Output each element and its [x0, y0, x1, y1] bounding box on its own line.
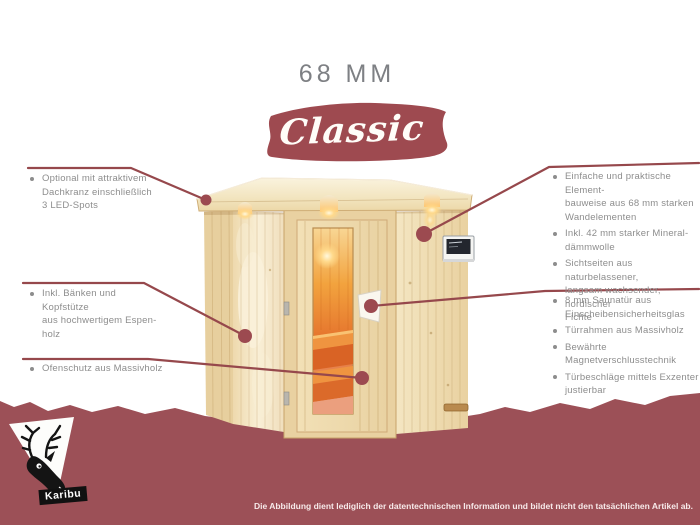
leader-dot-icon	[201, 195, 212, 206]
annotation-baenke: Inkl. Bänken und Kopfstütze aus hochwert…	[30, 287, 165, 341]
bullet-dot-icon	[553, 329, 557, 333]
annotation-group-door: 8 mm Saunatür aus Einscheibensicherheits…	[553, 294, 700, 398]
control-panel	[443, 236, 474, 262]
bullet-dot-icon	[553, 345, 557, 349]
annotation-magnetverschluss: Bewährte Magnetverschlusstechnik	[553, 341, 700, 368]
door-hinge-top	[284, 302, 289, 315]
annotation-saunatuer: 8 mm Saunatür aus Einscheibensicherheits…	[553, 294, 700, 321]
sauna-illustration	[197, 178, 474, 438]
vent-slot	[444, 404, 468, 411]
disclaimer-text: Die Abbildung dient lediglich der datent…	[243, 500, 693, 512]
annotation-elementbauweise: Einfache und praktische Element- bauweis…	[553, 170, 700, 224]
bullet-dot-icon	[553, 175, 557, 179]
led-spot-icon	[318, 195, 340, 220]
bullet-dot-icon	[553, 375, 557, 379]
page-title: 68 MM	[237, 60, 457, 89]
leader-dot-icon	[416, 226, 432, 242]
annotation-tuerrahmen: Türrahmen aus Massivholz	[553, 324, 700, 338]
bullet-dot-icon	[553, 232, 557, 236]
bullet-dot-icon	[30, 177, 34, 181]
annotation-led-spots: Optional mit attraktivem Dachkranz einsc…	[30, 172, 160, 213]
leader-dot-icon	[364, 299, 378, 313]
sauna-corner-wall	[233, 210, 284, 432]
bullet-dot-icon	[30, 292, 34, 296]
infographic-page: 68 MM Classic Optional mit attraktivem D…	[0, 0, 700, 525]
sauna-lamp-glow	[314, 243, 340, 269]
annotation-daemmwolle: Inkl. 42 mm starker Mineral- dämmwolle	[553, 227, 700, 254]
bullet-dot-icon	[553, 262, 557, 266]
door-glass	[313, 228, 353, 414]
product-line-name: Classic	[261, 99, 443, 161]
bullet-dot-icon	[30, 367, 34, 371]
annotation-ofenschutz: Ofenschutz aus Massivholz	[30, 362, 190, 376]
door-hinge-bottom	[284, 392, 289, 405]
bullet-dot-icon	[553, 299, 557, 303]
leader-dot-icon	[238, 329, 252, 343]
sauna-door	[284, 210, 396, 438]
leader-dot-icon	[355, 371, 369, 385]
annotation-tuerbeschlaege: Türbeschläge mittels Exzenter justierbar	[553, 371, 700, 398]
